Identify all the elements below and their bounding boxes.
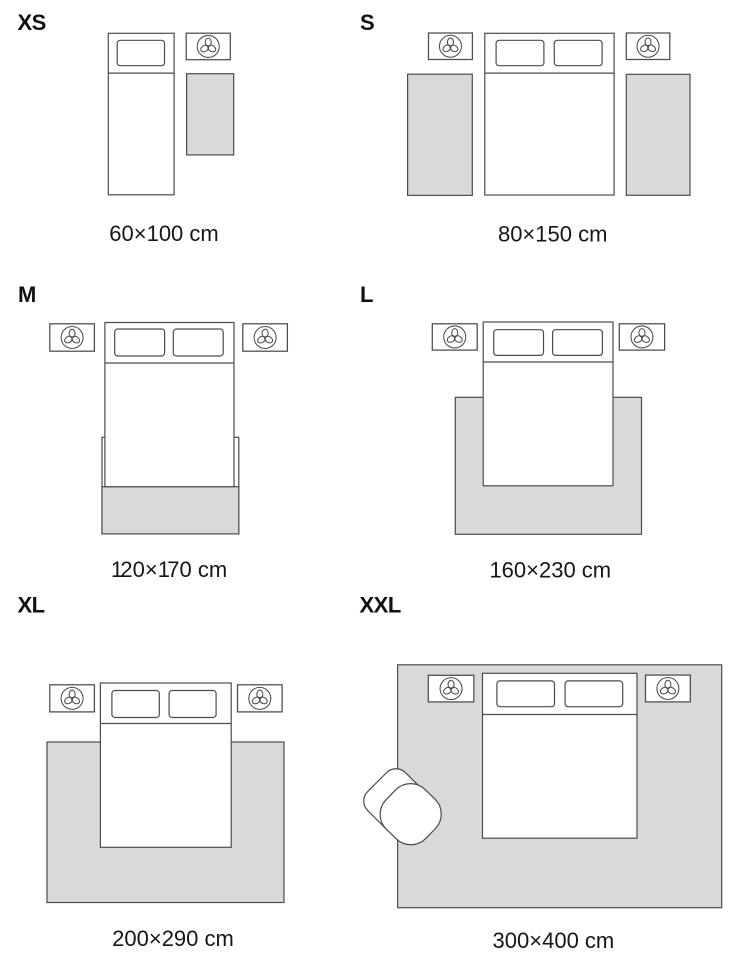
- svg-text:XL: XL: [18, 593, 45, 618]
- svg-text:160×230 cm: 160×230 cm: [489, 558, 611, 583]
- svg-text:80×150 cm: 80×150 cm: [498, 222, 607, 247]
- svg-text:300×400 cm: 300×400 cm: [493, 928, 615, 953]
- svg-text:L: L: [360, 282, 373, 307]
- svg-text:XXL: XXL: [360, 593, 401, 618]
- svg-text:XS: XS: [18, 10, 46, 35]
- svg-text:60×100 cm: 60×100 cm: [109, 221, 218, 246]
- svg-text:M: M: [18, 282, 36, 307]
- svg-text:S: S: [360, 10, 374, 35]
- svg-text:120×170 cm: 120×170 cm: [111, 557, 227, 582]
- svg-text:200×290 cm: 200×290 cm: [112, 926, 234, 951]
